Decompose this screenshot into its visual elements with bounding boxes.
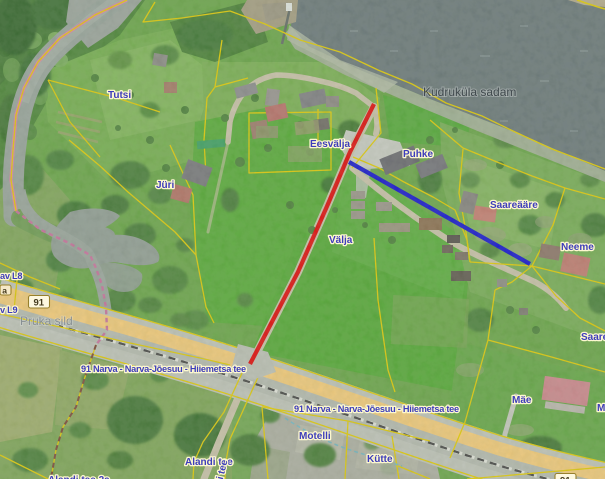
svg-text:Alandi tee 2a: Alandi tee 2a [48,475,110,479]
svg-text:Mäe: Mäe [512,395,532,406]
svg-text:v L9: v L9 [0,305,18,315]
svg-text:Motelli: Motelli [299,431,331,442]
svg-text:Jüri: Jüri [156,180,175,191]
svg-text:91 Narva - Narva-Jõesuu - Hiie: 91 Narva - Narva-Jõesuu - Hiiemetsa tee [294,404,459,414]
svg-text:91 Narva - Narva-Jõesuu - Hiie: 91 Narva - Narva-Jõesuu - Hiiemetsa tee [81,364,246,374]
svg-text:91: 91 [34,298,45,309]
svg-text:a: a [2,286,7,296]
svg-text:91: 91 [560,476,571,479]
svg-text:Tutsi: Tutsi [108,90,131,101]
svg-text:Mäe: Mäe [597,403,605,414]
svg-text:Välja: Välja [329,235,353,246]
svg-text:Kudruküla sadam: Kudruküla sadam [423,85,516,99]
svg-text:Eesvälja: Eesvälja [310,139,350,150]
svg-text:Kütte: Kütte [367,454,393,465]
svg-text:av L8: av L8 [0,271,22,281]
svg-text:Neeme: Neeme [561,242,594,253]
svg-text:Puhke: Puhke [403,149,433,160]
svg-text:Saare: Saare [581,332,605,343]
svg-text:Saareääre: Saareääre [490,200,538,211]
svg-text:Pruka sild: Pruka sild [20,314,73,328]
